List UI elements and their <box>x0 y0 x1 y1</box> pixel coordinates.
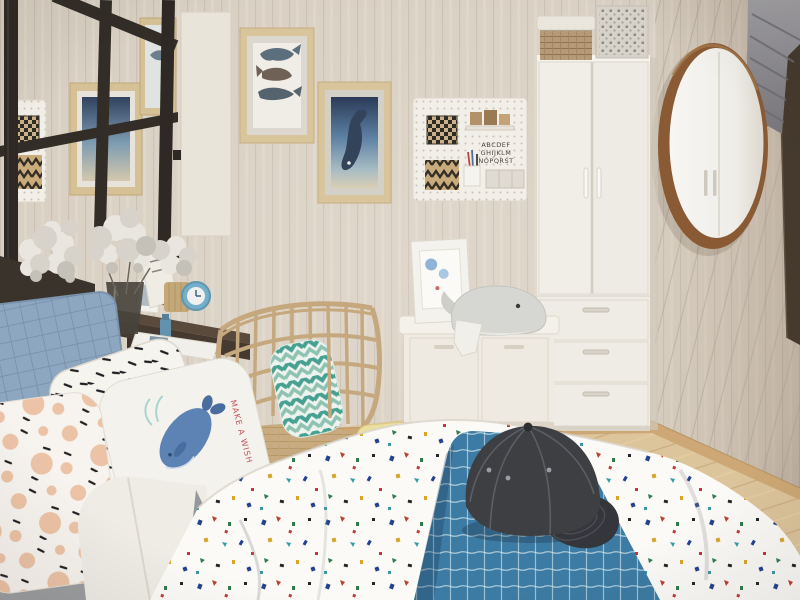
vignette <box>0 0 800 600</box>
bedroom-photo: ABCDEF GHIJKLM NOPQRST <box>0 0 800 600</box>
